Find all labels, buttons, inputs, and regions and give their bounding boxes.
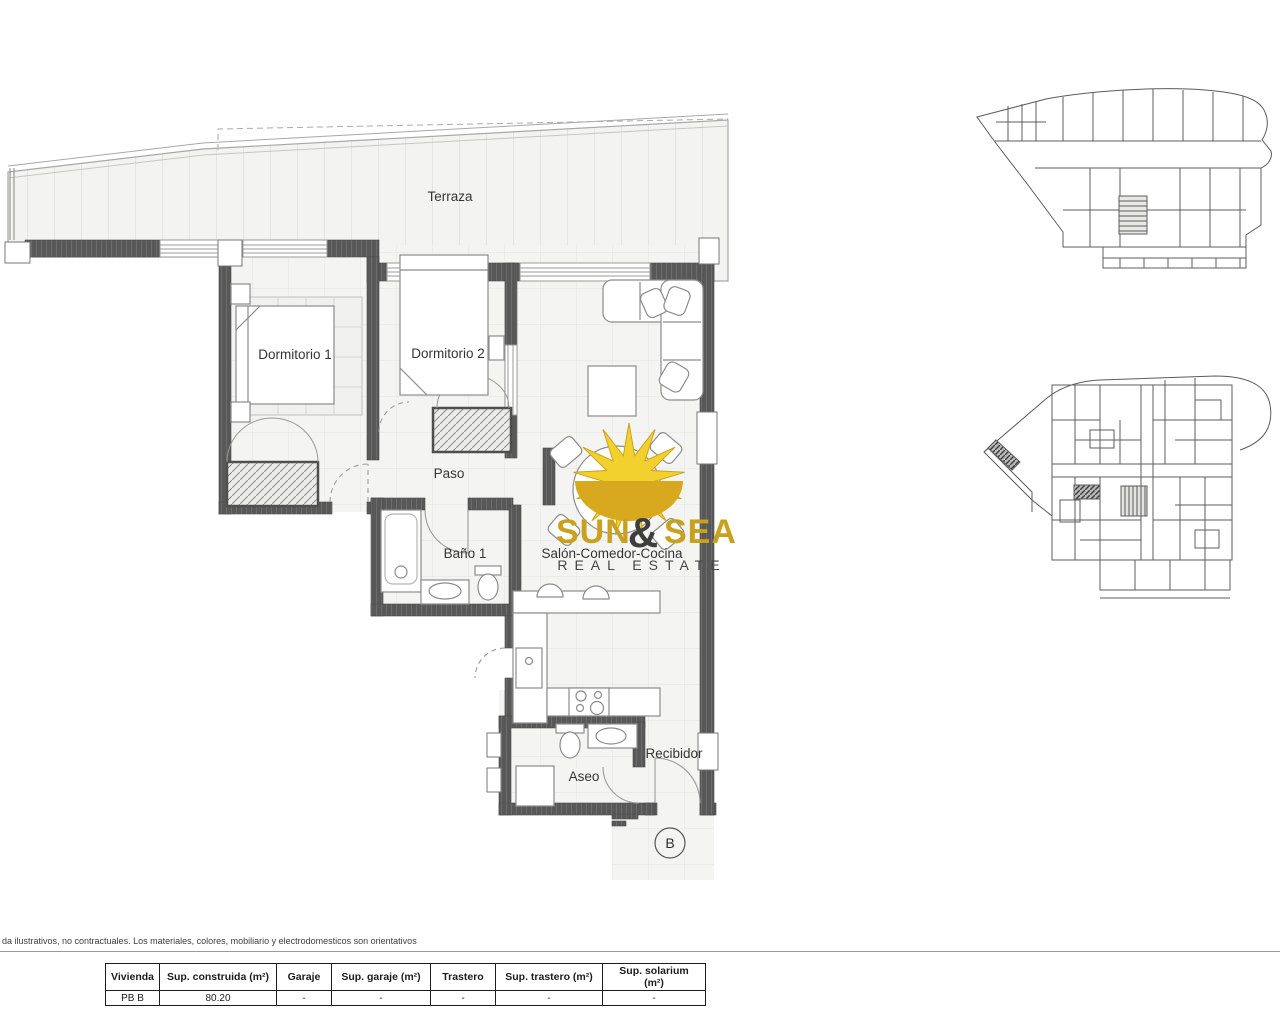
wardrobe-dorm1 bbox=[227, 462, 318, 506]
label-dormitorio1: Dormitorio 1 bbox=[258, 347, 332, 362]
cell-sup-garaje: - bbox=[332, 991, 431, 1006]
unit-marker-label: B bbox=[665, 835, 674, 851]
toilet-bowl bbox=[560, 732, 580, 758]
col-trastero: Trastero bbox=[431, 964, 496, 991]
nightstand bbox=[489, 336, 504, 360]
surface-table: Vivienda Sup. construida (m²) Garaje Sup… bbox=[105, 963, 706, 1006]
divider-line bbox=[0, 951, 1280, 952]
surface-table-data-row: PB B 80.20 - - - - - bbox=[106, 991, 706, 1006]
col-sup-garaje: Sup. garaje (m²) bbox=[332, 964, 431, 991]
landing: B bbox=[655, 828, 685, 858]
label-paso: Paso bbox=[434, 466, 465, 481]
mini-plan-lower bbox=[984, 376, 1271, 598]
surface-table-header-row: Vivienda Sup. construida (m²) Garaje Sup… bbox=[106, 964, 706, 991]
cell-sup-trastero: - bbox=[496, 991, 603, 1006]
door-kitchen bbox=[475, 648, 505, 678]
pillar bbox=[699, 238, 719, 264]
stove bbox=[569, 688, 609, 716]
floor-plan-drawing: B SUN & SEA REAL ESTATE Terraza Dormitor… bbox=[0, 0, 1280, 1024]
disclaimer-text: da ilustrativos, no contractuales. Los m… bbox=[2, 936, 417, 946]
col-vivienda: Vivienda bbox=[106, 964, 160, 991]
washer bbox=[516, 766, 554, 806]
pillar bbox=[218, 240, 242, 266]
label-salon: Salón-Comedor-Cocina bbox=[541, 546, 683, 561]
mini-plan-upper bbox=[977, 89, 1271, 268]
toilet-bowl bbox=[478, 574, 498, 600]
cell-garaje: - bbox=[277, 991, 332, 1006]
col-garaje: Garaje bbox=[277, 964, 332, 991]
coffee-table bbox=[588, 366, 636, 416]
nightstand bbox=[231, 284, 250, 304]
col-sup-construida: Sup. construida (m²) bbox=[160, 964, 277, 991]
col-sup-trastero: Sup. trastero (m²) bbox=[496, 964, 603, 991]
label-dormitorio2: Dormitorio 2 bbox=[411, 346, 485, 361]
bed-dorm2 bbox=[400, 255, 504, 395]
cell-vivienda: PB B bbox=[106, 991, 160, 1006]
label-recibidor: Recibidor bbox=[645, 746, 703, 761]
col-sup-solarium: Sup. solarium (m²) bbox=[603, 964, 706, 991]
shaft bbox=[487, 768, 501, 792]
stairs bbox=[1074, 485, 1100, 499]
stairs bbox=[1119, 196, 1147, 234]
apartments-outline bbox=[984, 376, 1271, 452]
cell-sup-solarium: - bbox=[603, 991, 706, 1006]
kitchen-sink bbox=[516, 648, 542, 688]
cell-trastero: - bbox=[431, 991, 496, 1006]
shaft bbox=[487, 733, 501, 757]
garage-outline bbox=[977, 89, 1271, 268]
pillar-window bbox=[697, 412, 717, 464]
label-bano1: Baño 1 bbox=[444, 546, 487, 561]
pillar bbox=[5, 242, 30, 263]
label-aseo: Aseo bbox=[569, 769, 600, 784]
floor-plan-page: B SUN & SEA REAL ESTATE Terraza Dormitor… bbox=[0, 0, 1280, 1024]
label-terraza: Terraza bbox=[427, 189, 473, 204]
ramp bbox=[988, 440, 1020, 470]
wardrobe-dorm2 bbox=[433, 408, 511, 452]
cell-sup-construida: 80.20 bbox=[160, 991, 277, 1006]
nightstand bbox=[231, 402, 250, 422]
